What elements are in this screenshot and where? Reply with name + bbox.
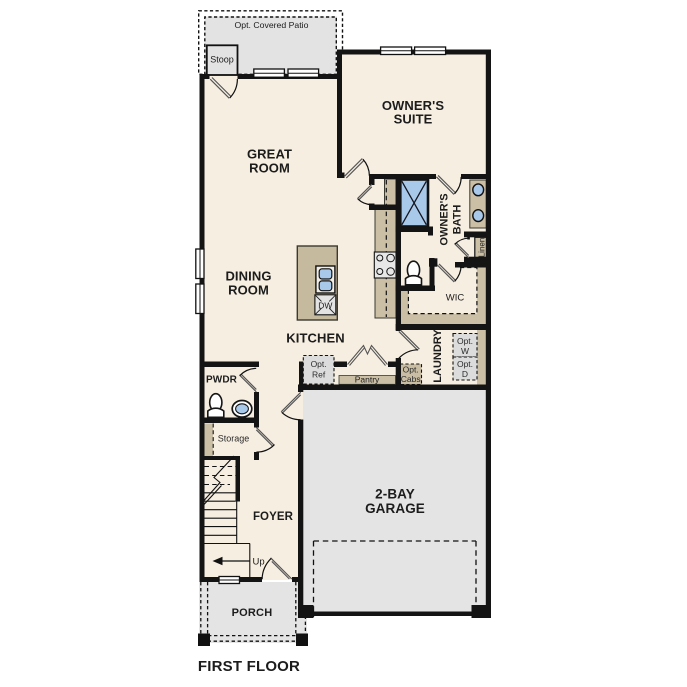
svg-text:DINING: DINING xyxy=(225,269,271,284)
svg-text:W: W xyxy=(461,346,469,356)
svg-text:OWNER'S: OWNER'S xyxy=(439,193,451,245)
svg-text:Linen: Linen xyxy=(478,238,487,258)
svg-text:Opt.: Opt. xyxy=(457,336,473,346)
svg-text:Opt.: Opt. xyxy=(457,359,473,369)
svg-text:GARAGE: GARAGE xyxy=(365,501,425,516)
svg-text:Cabs: Cabs xyxy=(401,374,421,384)
svg-text:KITCHEN: KITCHEN xyxy=(286,331,344,346)
svg-text:ROOM: ROOM xyxy=(228,283,269,298)
svg-text:Opt.: Opt. xyxy=(403,365,419,375)
svg-text:SUITE: SUITE xyxy=(394,112,433,127)
svg-text:DW: DW xyxy=(318,301,332,311)
svg-text:Opt.: Opt. xyxy=(311,359,327,369)
svg-text:PWDR: PWDR xyxy=(206,375,238,386)
svg-text:Ref: Ref xyxy=(312,370,326,380)
svg-text:BATH: BATH xyxy=(451,205,463,235)
svg-text:WIC: WIC xyxy=(446,293,465,304)
svg-text:D: D xyxy=(462,369,468,379)
svg-text:GREAT: GREAT xyxy=(247,147,292,162)
svg-text:FOYER: FOYER xyxy=(253,511,294,523)
svg-text:LAUNDRY: LAUNDRY xyxy=(432,329,444,383)
svg-text:Opt. Covered Patio: Opt. Covered Patio xyxy=(235,20,309,30)
svg-text:PORCH: PORCH xyxy=(232,607,273,619)
svg-text:FIRST FLOOR: FIRST FLOOR xyxy=(198,658,300,675)
svg-text:Stoop: Stoop xyxy=(210,54,234,64)
svg-text:Pantry: Pantry xyxy=(355,375,380,385)
svg-text:Up: Up xyxy=(253,557,265,568)
svg-text:2-BAY: 2-BAY xyxy=(375,487,415,502)
svg-text:Storage: Storage xyxy=(218,434,250,444)
svg-text:ROOM: ROOM xyxy=(249,161,290,176)
